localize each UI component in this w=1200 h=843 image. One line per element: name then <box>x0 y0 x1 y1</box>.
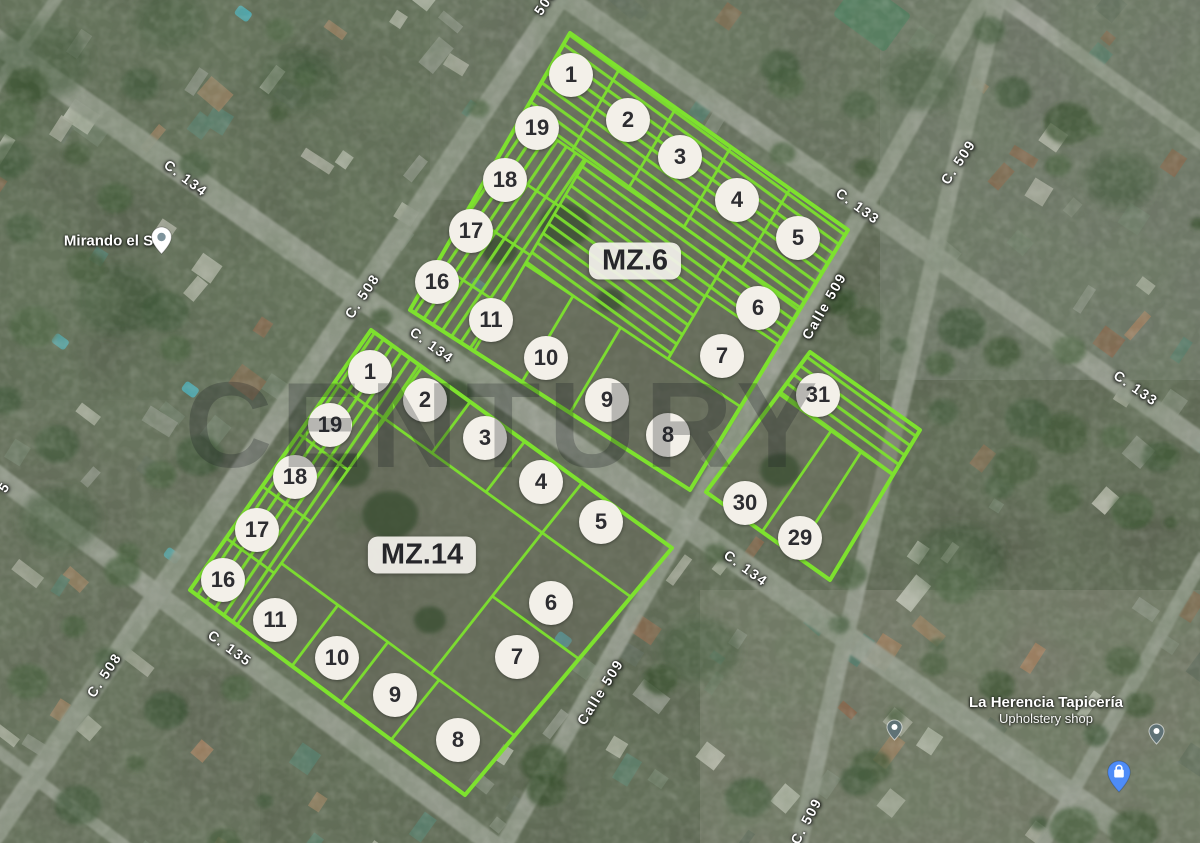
lot-marker-mz6-2[interactable]: 2 <box>606 98 650 142</box>
lot-marker-mz6-11[interactable]: 11 <box>469 298 513 342</box>
lot-marker-mz14-9[interactable]: 9 <box>373 673 417 717</box>
shopping-pin-icon <box>1106 760 1132 793</box>
lot-marker-mz14-11[interactable]: 11 <box>253 598 297 642</box>
poi-subtitle: Upholstery shop <box>969 711 1123 726</box>
lot-marker-east-30[interactable]: 30 <box>723 481 767 525</box>
lot-marker-mz14-5[interactable]: 5 <box>579 500 623 544</box>
lot-marker-mz14-7[interactable]: 7 <box>495 635 539 679</box>
poi-pin-icon <box>886 719 903 741</box>
lot-marker-mz6-4[interactable]: 4 <box>715 178 759 222</box>
block-label-mz6: MZ.6 <box>589 243 681 280</box>
lot-marker-mz6-5[interactable]: 5 <box>776 216 820 260</box>
poi-pin-icon <box>1148 723 1165 745</box>
lot-marker-mz6-9[interactable]: 9 <box>585 378 629 422</box>
lot-marker-mz14-1[interactable]: 1 <box>348 350 392 394</box>
lot-marker-mz6-1[interactable]: 1 <box>549 53 593 97</box>
lot-marker-mz14-4[interactable]: 4 <box>519 460 563 504</box>
lot-marker-mz6-8[interactable]: 8 <box>646 413 690 457</box>
lot-marker-east-31[interactable]: 31 <box>796 373 840 417</box>
lot-marker-east-29[interactable]: 29 <box>778 516 822 560</box>
lot-marker-mz14-16[interactable]: 16 <box>201 558 245 602</box>
lot-marker-mz14-3[interactable]: 3 <box>463 416 507 460</box>
poi-name: La Herencia Tapicería <box>969 694 1123 711</box>
lot-marker-mz14-2[interactable]: 2 <box>403 378 447 422</box>
lot-marker-mz14-8[interactable]: 8 <box>436 718 480 762</box>
lot-marker-mz14-19[interactable]: 19 <box>308 403 352 447</box>
lot-marker-mz14-6[interactable]: 6 <box>529 581 573 625</box>
block-label-mz14: MZ.14 <box>368 537 476 574</box>
satellite-map: MZ.6 MZ.14 Mirando el Sur La Herencia Ta… <box>0 0 1200 843</box>
poi-label-la-herencia[interactable]: La Herencia Tapicería Upholstery shop <box>969 694 1123 726</box>
lot-marker-mz14-10[interactable]: 10 <box>315 636 359 680</box>
lot-marker-mz6-6[interactable]: 6 <box>736 286 780 330</box>
lot-marker-mz6-18[interactable]: 18 <box>483 158 527 202</box>
lot-marker-mz6-19[interactable]: 19 <box>515 106 559 150</box>
lot-marker-mz6-3[interactable]: 3 <box>658 135 702 179</box>
lot-marker-mz6-16[interactable]: 16 <box>415 260 459 304</box>
lot-marker-mz14-17[interactable]: 17 <box>235 508 279 552</box>
lot-marker-mz6-7[interactable]: 7 <box>700 334 744 378</box>
lot-marker-mz6-10[interactable]: 10 <box>524 336 568 380</box>
lot-marker-mz6-17[interactable]: 17 <box>449 209 493 253</box>
lot-marker-mz14-18[interactable]: 18 <box>273 455 317 499</box>
map-pin-icon <box>150 226 173 255</box>
